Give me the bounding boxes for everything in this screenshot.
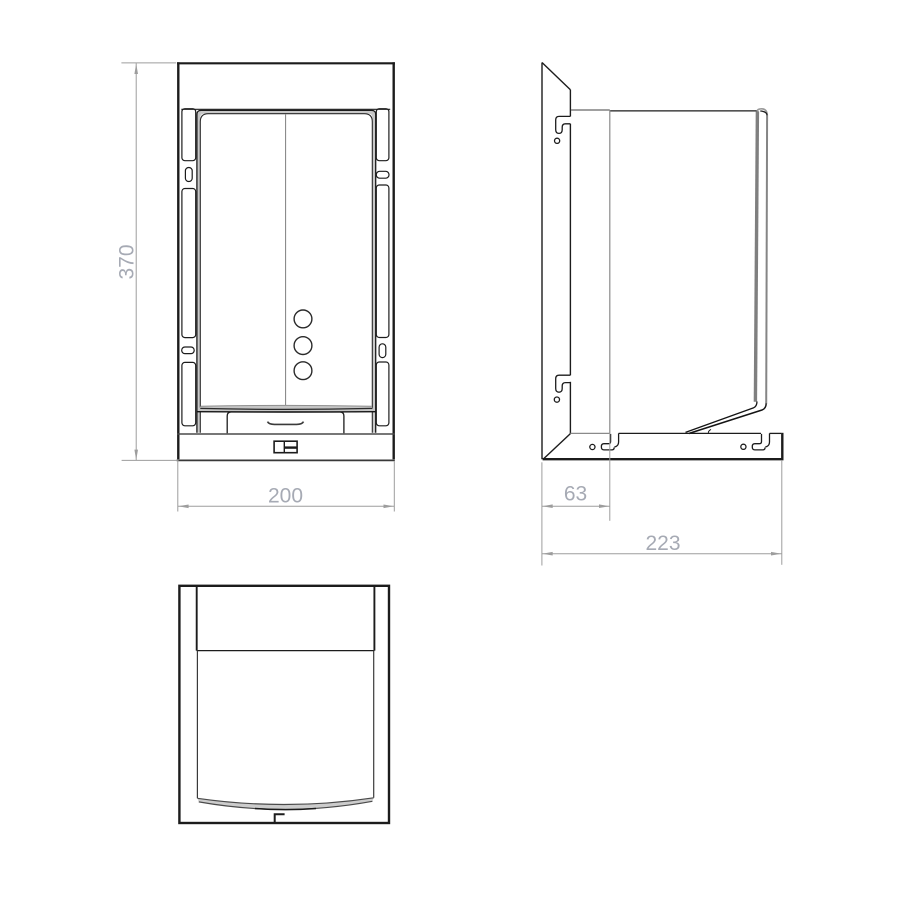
- svg-text:370: 370: [115, 244, 138, 279]
- svg-text:63: 63: [564, 483, 587, 506]
- svg-text:223: 223: [645, 532, 680, 555]
- svg-text:200: 200: [268, 485, 303, 508]
